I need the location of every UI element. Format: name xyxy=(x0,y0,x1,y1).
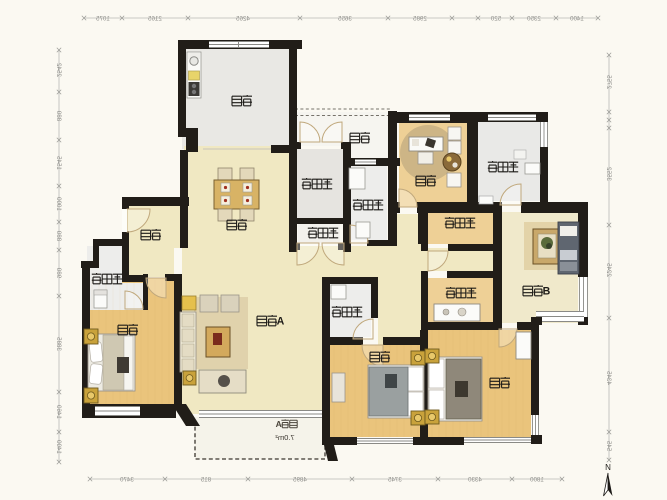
svg-text:880: 880 xyxy=(55,230,62,241)
svg-text:2165: 2165 xyxy=(148,16,162,23)
svg-text:880: 880 xyxy=(55,110,62,121)
svg-text:B: B xyxy=(543,286,551,298)
svg-text:3885: 3885 xyxy=(55,337,62,351)
svg-text:815: 815 xyxy=(200,477,211,484)
svg-text:980: 980 xyxy=(55,267,62,278)
svg-text:N: N xyxy=(605,463,611,472)
svg-text:545: 545 xyxy=(605,440,612,451)
svg-text:1460: 1460 xyxy=(55,405,62,419)
svg-text:4895: 4895 xyxy=(293,477,307,484)
svg-text:7.0m²: 7.0m² xyxy=(275,433,295,442)
svg-text:A: A xyxy=(277,316,285,328)
svg-text:2755: 2755 xyxy=(605,75,612,89)
svg-text:4330: 4330 xyxy=(468,477,482,484)
svg-text:A: A xyxy=(276,419,282,429)
svg-text:1000: 1000 xyxy=(55,197,62,211)
svg-text:1075: 1075 xyxy=(96,16,110,23)
svg-text:2985: 2985 xyxy=(413,16,427,23)
svg-text:2350: 2350 xyxy=(527,16,541,23)
svg-text:2542: 2542 xyxy=(55,63,62,77)
svg-text:1800: 1800 xyxy=(530,477,544,484)
svg-text:4265: 4265 xyxy=(236,16,250,23)
svg-text:1400: 1400 xyxy=(55,440,62,454)
svg-text:1545: 1545 xyxy=(55,156,62,170)
svg-text:3655: 3655 xyxy=(338,16,352,23)
svg-text:4345: 4345 xyxy=(605,371,612,385)
svg-text:3552: 3552 xyxy=(605,167,612,181)
svg-text:3470: 3470 xyxy=(120,477,134,484)
svg-text:1400: 1400 xyxy=(570,16,584,23)
svg-text:3745: 3745 xyxy=(388,477,402,484)
svg-text:2245: 2245 xyxy=(605,263,612,277)
svg-text:520: 520 xyxy=(490,16,501,23)
